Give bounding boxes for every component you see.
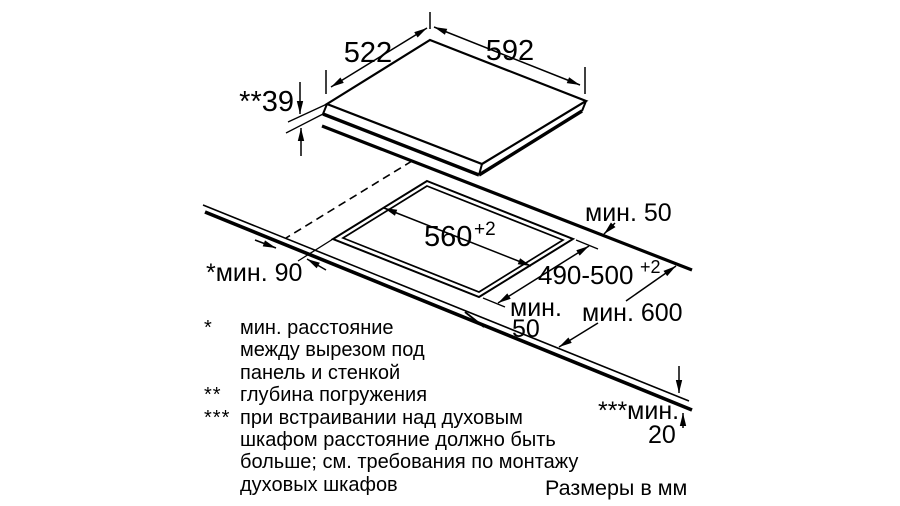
label-back-clearance: мин. 50 [585,199,672,227]
label-cooktop-depth: 522 [344,37,392,69]
label-worktop-thickness-value: 20 [648,421,676,449]
label-cutout-width: 560 [424,221,472,253]
footnote-star-text: мин. расстояние между вырезом под панель… [240,317,634,384]
label-cooktop-width: 592 [486,35,534,67]
footnote-marker-star: * [204,317,240,339]
side-wall-dashed-line [286,161,412,238]
footnote-star: * мин. расстояние между вырезом под пане… [204,317,634,384]
footnote-double-star-text: глубина погружения [240,384,634,406]
ext-line-490-lower [483,298,505,307]
footnote-line: больше; см. требования по монтажу [240,451,634,473]
footnotes: * мин. расстояние между вырезом под пане… [204,317,634,496]
label-immersion-depth: **39 [239,86,294,118]
label-cutout-depth-tol: +2 [640,257,661,277]
footnote-line: при встраивании над духовым [240,407,634,429]
label-cutout-width-tol: +2 [474,219,496,240]
footnote-marker-double-star: ** [204,384,240,406]
label-side-wall-clearance: *мин. 90 [206,259,302,287]
installation-diagram: 522 592 **39 560 +2 490-500 +2 мин. 50 м… [0,0,900,506]
footnote-line: шкафом расстояние должно быть [240,429,634,451]
footnote-line: панель и стенкой [240,362,634,384]
footnote-line: между вырезом под [240,339,634,361]
footnote-line: мин. расстояние [240,317,634,339]
footnote-marker-triple-star: *** [204,407,240,429]
units-note: Размеры в мм [545,476,687,501]
footnote-double-star: ** глубина погружения [204,384,634,406]
footnote-line: глубина погружения [240,384,634,406]
label-cutout-depth: 490-500 [538,260,633,290]
